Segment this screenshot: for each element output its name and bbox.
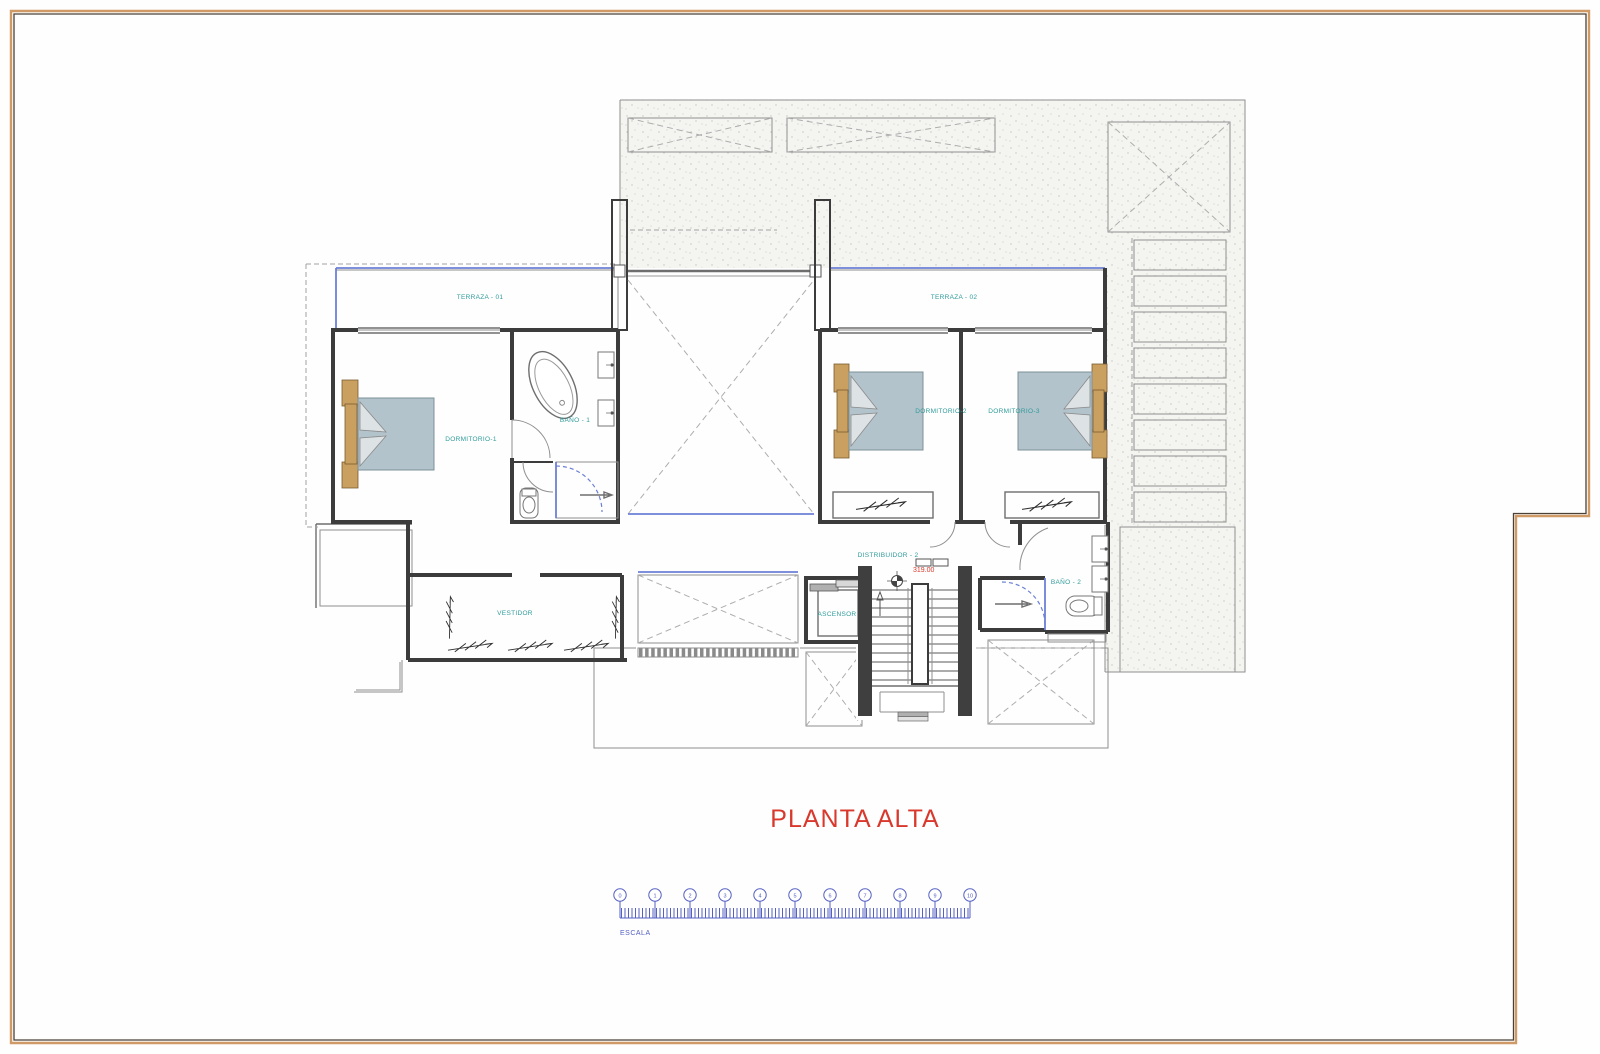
vestidor-label: VESTIDOR [497, 610, 533, 617]
svg-text:6: 6 [828, 893, 831, 899]
svg-text:8: 8 [898, 893, 901, 899]
corridor-void [636, 572, 800, 659]
sink-icon [598, 352, 614, 378]
scale-bar: 012345678910 ESCALA [614, 889, 976, 937]
svg-text:9: 9 [933, 893, 936, 899]
svg-text:1: 1 [653, 893, 656, 899]
wardrobe-icon [1005, 492, 1099, 518]
exterior-step [354, 660, 402, 692]
level-value: 319.00 [913, 567, 935, 574]
bed-icon [342, 380, 434, 488]
svg-text:3: 3 [723, 893, 726, 899]
terrace-2: TERRAZA - 02 [830, 268, 1105, 330]
distribuidor-label: DISTRIBUIDOR - 2 [858, 552, 919, 559]
svg-text:10: 10 [967, 893, 973, 899]
svg-text:4: 4 [758, 893, 761, 899]
toilet-icon [520, 488, 538, 518]
room-bano-2: BAÑO - 2 [1051, 536, 1108, 616]
central-void [628, 280, 814, 514]
bed-icon [834, 364, 923, 458]
bano-1-label: BAÑO - 1 [560, 415, 590, 424]
terrace-1-label: TERRAZA - 01 [457, 294, 504, 301]
elevator-door-icon [810, 584, 838, 591]
floor-plan-canvas: TERRAZA - 01 TERRAZA - 02 [0, 0, 1600, 1054]
plan-title: PLANTA ALTA [770, 805, 939, 833]
sink-icon [598, 400, 614, 426]
svg-text:2: 2 [688, 893, 691, 899]
shower-room [980, 578, 1045, 630]
bano-2-label: BAÑO - 2 [1051, 577, 1081, 586]
room-dormitorio-2: DORMITORIO-2 [833, 364, 967, 518]
terrace-1: TERRAZA - 01 [336, 268, 618, 330]
scale-label: ESCALA [620, 930, 651, 937]
svg-text:0: 0 [618, 893, 621, 899]
shower-icon [556, 462, 618, 518]
ascensor-label: ASCENSOR [818, 611, 857, 618]
sink-icon [1092, 536, 1108, 562]
dormitorio-3-label: DORMITORIO-3 [988, 408, 1040, 415]
bathtub-icon [519, 344, 587, 426]
wardrobe-icon [833, 492, 933, 518]
toilet-icon [1066, 596, 1102, 616]
room-dormitorio-1: DORMITORIO-1 [342, 380, 497, 488]
terrace-2-label: TERRAZA - 02 [931, 294, 978, 301]
room-bano-1: BAÑO - 1 [519, 344, 618, 518]
drawing-sheet: TERRAZA - 01 TERRAZA - 02 [0, 0, 1600, 1054]
room-vestidor: VESTIDOR [440, 596, 624, 652]
gravel-terrace-left [316, 524, 412, 608]
scale-tick-numbers: 012345678910 [614, 889, 976, 918]
svg-text:5: 5 [793, 893, 796, 899]
dormitorio-2-label: DORMITORIO-2 [915, 408, 967, 415]
svg-text:7: 7 [863, 893, 866, 899]
roof-area [620, 100, 1245, 672]
dormitorio-1-label: DORMITORIO-1 [445, 436, 497, 443]
level-marker-icon [887, 571, 907, 591]
sink-icon [1092, 566, 1108, 592]
room-dormitorio-3: DORMITORIO-3 [988, 364, 1107, 518]
